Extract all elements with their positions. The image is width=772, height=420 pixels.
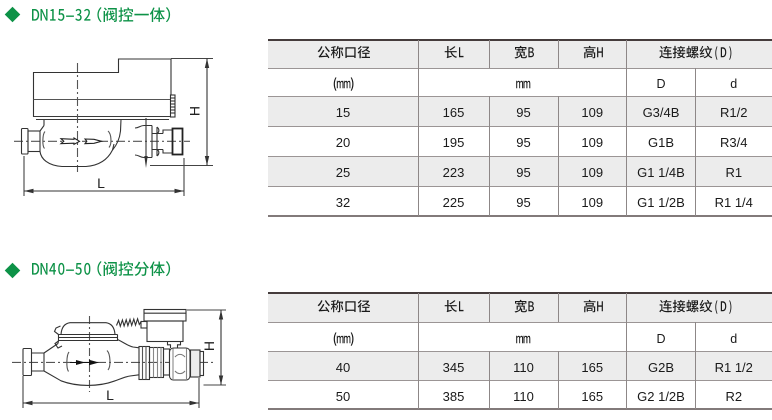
svg-text:L: L <box>97 175 105 191</box>
svg-text:L: L <box>106 387 114 403</box>
svg-text:H: H <box>201 341 217 351</box>
svg-text:H: H <box>187 106 203 116</box>
